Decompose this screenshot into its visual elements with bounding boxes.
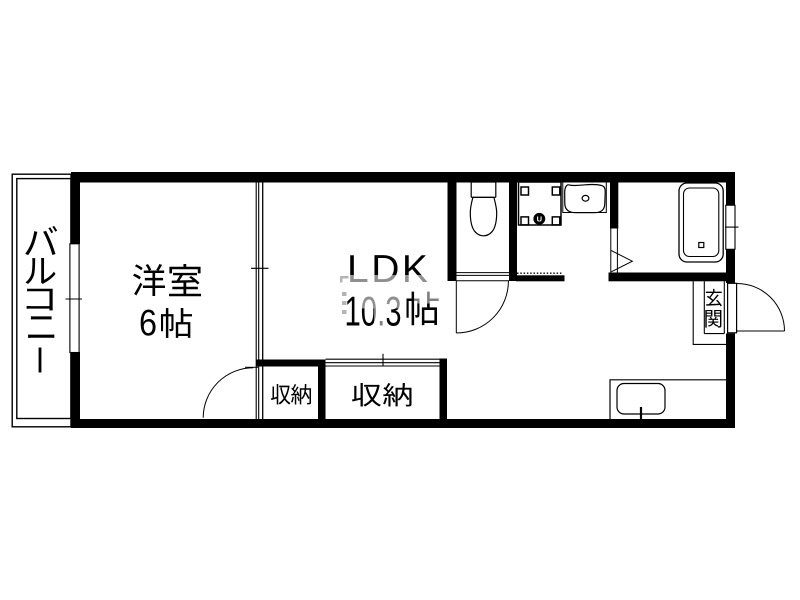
svg-text:6: 6 xyxy=(139,302,157,344)
svg-text:U: U xyxy=(537,215,542,224)
